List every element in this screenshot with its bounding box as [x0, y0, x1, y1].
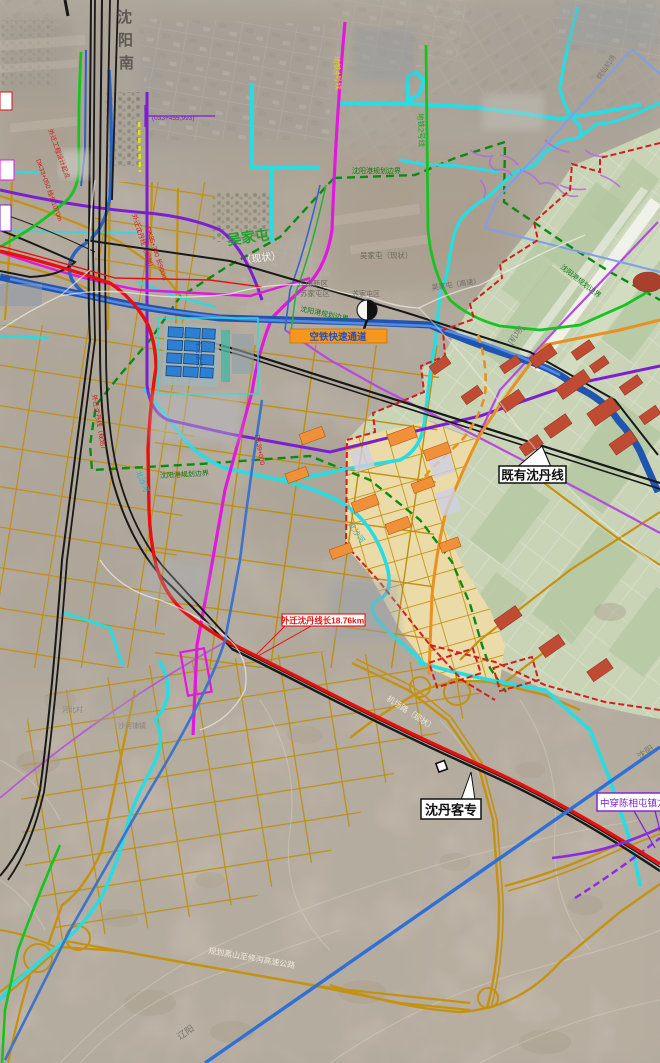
svg-text:空铁快速通道: 空铁快速通道 — [309, 331, 367, 343]
svg-text:河北村: 河北村 — [62, 705, 83, 714]
svg-text:沈阳港规划边界: 沈阳港规划边界 — [352, 166, 401, 175]
svg-text:苏家屯区: 苏家屯区 — [352, 289, 380, 298]
svg-text:沙河铺镇: 沙河铺镇 — [118, 721, 146, 730]
svg-text:既有沈丹线: 既有沈丹线 — [501, 468, 564, 483]
svg-text:地铁2号线: 地铁2号线 — [416, 113, 427, 148]
svg-text:阳: 阳 — [118, 32, 133, 49]
svg-text:南: 南 — [119, 54, 134, 72]
svg-text:沈: 沈 — [117, 8, 132, 26]
svg-text:浑南新区: 浑南新区 — [298, 278, 328, 288]
svg-text:(033+455,993): (033+455,993) — [152, 115, 194, 122]
svg-text:吴家屯（现状）: 吴家屯（现状） — [360, 250, 413, 260]
svg-text:沈丹客专: 沈丹客专 — [425, 803, 477, 818]
svg-text:中穿陈相屯镇方案: 中穿陈相屯镇方案 — [600, 798, 660, 810]
svg-text:外迁沈丹线长18.76km: 外迁沈丹线长18.76km — [280, 616, 364, 626]
svg-text:苏家屯区: 苏家屯区 — [300, 288, 330, 298]
